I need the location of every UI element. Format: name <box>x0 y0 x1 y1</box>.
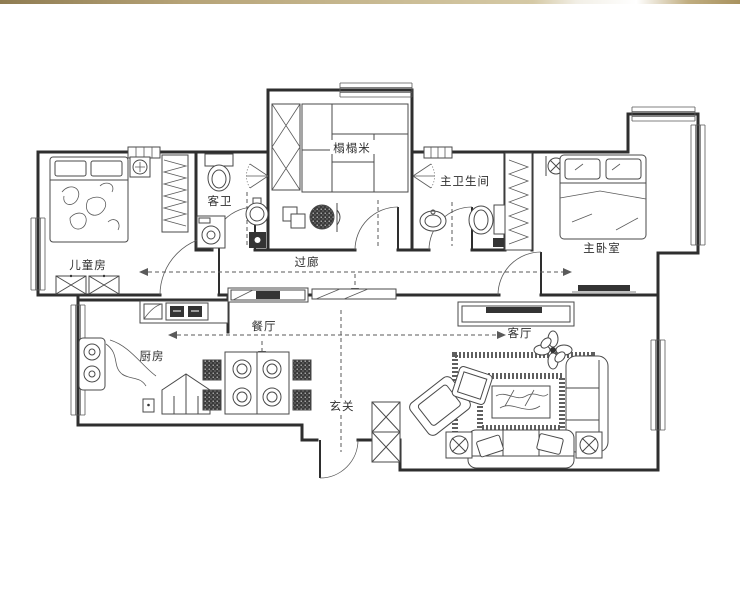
washing-machine-icon <box>197 216 225 248</box>
door-master-bedroom <box>498 252 541 295</box>
kitchen-counter-icon <box>140 301 228 323</box>
tv-bedroom-icon <box>572 285 636 292</box>
window-children-top <box>128 147 160 158</box>
bed-master-icon <box>560 155 646 239</box>
room-label-kitchen: 厨房 <box>140 349 165 363</box>
room-label-dining: 餐厅 <box>252 319 277 333</box>
kitchen-stub-icon <box>143 399 154 412</box>
room-label-master-bath: 主卫生间 <box>440 174 490 188</box>
room-label-living: 客厅 <box>508 326 533 340</box>
lamp-table-left-icon <box>446 432 472 458</box>
cabinet-x-icon <box>56 275 119 294</box>
threshold-icon <box>312 289 396 299</box>
toilet-guest-icon <box>205 154 233 191</box>
sink-master-icon <box>420 210 446 231</box>
sideboard-icon <box>228 288 308 302</box>
kitchen-sink-icon <box>79 338 156 390</box>
door-tatami <box>355 207 398 250</box>
bed-icon <box>50 157 128 242</box>
bedside-table-icon <box>130 157 150 177</box>
wardrobe-tatami-icon <box>272 104 300 190</box>
room-label-tatami: 榻榻米 <box>333 141 371 155</box>
shower-guest-icon <box>246 164 268 188</box>
floor-plan-page: 儿童房 客卫 榻榻米 主卫生间 主卧室 过廊 厨房 餐厅 客厅 玄关 <box>0 0 740 600</box>
room-label-guest-bath: 客卫 <box>208 194 233 208</box>
cabinet-guest-bath-icon <box>249 232 266 248</box>
room-label-corridor: 过廊 <box>295 255 320 269</box>
toilet-master-icon <box>469 205 506 247</box>
floor-plan-svg: 儿童房 客卫 榻榻米 主卫生间 主卧室 过廊 厨房 餐厅 客厅 玄关 <box>0 0 740 600</box>
dining-table-icon <box>203 352 311 414</box>
shoe-cabinet-icon <box>372 402 400 462</box>
sofa-bottom-icon <box>468 430 574 468</box>
coffee-table-icon <box>480 376 562 428</box>
room-label-children: 儿童房 <box>69 258 107 272</box>
wardrobe-master-icon <box>505 153 532 250</box>
sink-guest-icon <box>246 198 268 225</box>
wardrobe-children-icon <box>162 155 188 232</box>
lamp-table-right-icon <box>576 432 602 458</box>
tv-console-icon <box>458 302 574 326</box>
window-bath-top <box>424 147 452 158</box>
desk-chair-icon <box>283 203 340 232</box>
room-label-master-bedroom: 主卧室 <box>583 241 621 255</box>
shower-master-icon <box>413 164 435 188</box>
door-entry <box>320 440 358 478</box>
room-label-entry: 玄关 <box>330 399 355 413</box>
